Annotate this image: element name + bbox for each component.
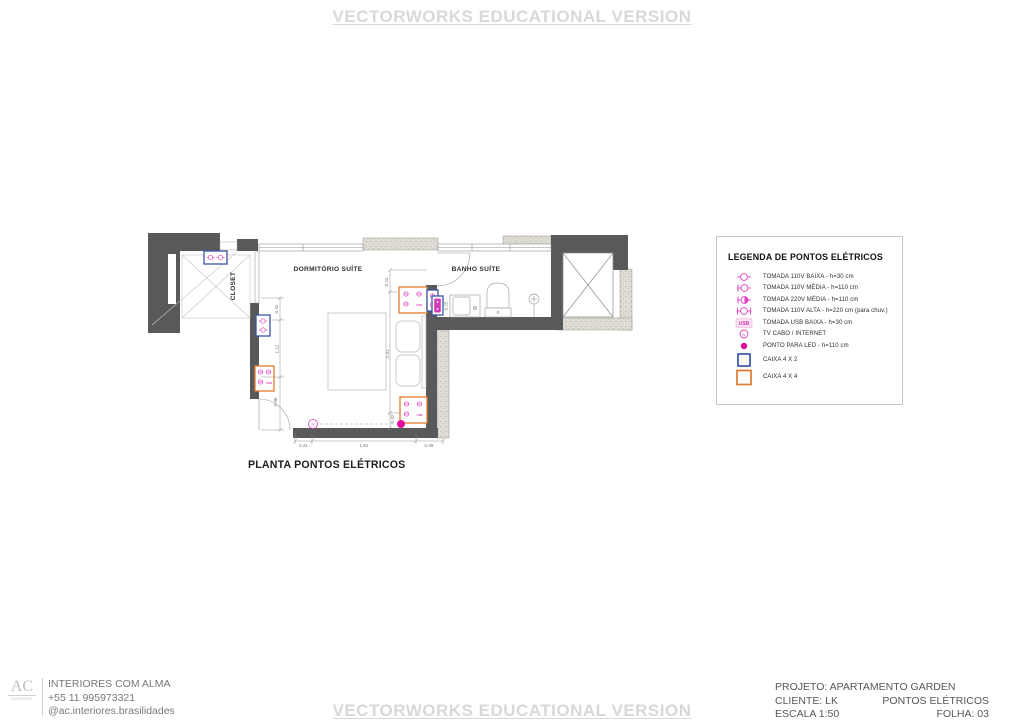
window-dormitorio [259, 244, 363, 251]
project-name: PROJETO: APARTAMENTO GARDEN [775, 681, 989, 695]
room-label-dormitorio: DORMITÓRIO SUÍTE [294, 264, 363, 273]
plan-title: PLANTA PONTOS ELÉTRICOS [248, 458, 405, 471]
window-banho [438, 244, 551, 251]
closet-divider [255, 252, 259, 303]
legend-title: LEGENDA DE PONTOS ELÉTRICOS [728, 252, 902, 262]
svg-text:1.12: 1.12 [275, 344, 280, 353]
svg-text:USB: USB [416, 303, 422, 307]
legend-panel: LEGENDA DE PONTOS ELÉTRICOS TOMADA 110V … [716, 236, 903, 405]
vectorworks-watermark-top: VECTORWORKS EDUCATIONAL VERSION [0, 7, 1024, 27]
room-label-closet: CLOSET [230, 272, 237, 301]
vectorworks-watermark-bottom: VECTORWORKS EDUCATIONAL VERSION [0, 701, 1024, 721]
led-point [397, 420, 405, 428]
floor-plan: USB USB USB tv [140, 225, 640, 485]
legend-item: CAIXA 4 X 4 [733, 369, 902, 386]
bed [328, 313, 426, 390]
svg-text:tv: tv [312, 423, 315, 427]
studio-name: INTERIORES COM ALMA [48, 678, 175, 692]
svg-text:0.21: 0.21 [299, 443, 308, 448]
room-label-banho: BANHO SUÍTE [452, 264, 501, 273]
svg-text:USB: USB [417, 413, 423, 417]
logo-initials: AC [8, 678, 36, 696]
svg-text:0.22: 0.22 [384, 277, 389, 286]
tv-point: tv [309, 420, 318, 429]
legend-item: PONTO PARA LED - h=110 cm [733, 340, 902, 352]
entry-opening [220, 242, 237, 250]
washbasin [450, 295, 480, 317]
outlet-box-bed-top-4x4: USB [399, 287, 427, 313]
svg-text:2.31: 2.31 [385, 349, 390, 358]
shower-drain [529, 294, 539, 317]
outlet-box-closet-4x2 [204, 251, 227, 264]
led-point-icon [733, 339, 763, 353]
toilet [485, 283, 511, 317]
outlet-box-left-wall-4x2 [256, 315, 270, 336]
outlet-box-banho-4x2 [432, 296, 443, 315]
svg-text:tv: tv [742, 332, 745, 337]
shaft [563, 253, 613, 317]
box-4x4-icon [733, 369, 763, 386]
svg-text:0.42: 0.42 [274, 304, 279, 313]
wall-slot [168, 254, 176, 304]
svg-text:0.32: 0.32 [390, 414, 395, 423]
svg-text:1.81: 1.81 [360, 443, 369, 448]
svg-text:0.96: 0.96 [273, 397, 278, 406]
box-4x2-icon [733, 352, 763, 368]
legend-item: CAIXA 4 X 2 [733, 352, 902, 369]
svg-text:USB: USB [266, 381, 272, 385]
svg-text:0.49: 0.49 [425, 443, 434, 448]
svg-text:USB: USB [739, 321, 750, 327]
dim-bath: 0.25 [444, 301, 449, 310]
outlet-box-bed-bottom-4x4: USB [400, 397, 427, 423]
outlet-box-left-wall-4x4: USB [255, 366, 274, 391]
